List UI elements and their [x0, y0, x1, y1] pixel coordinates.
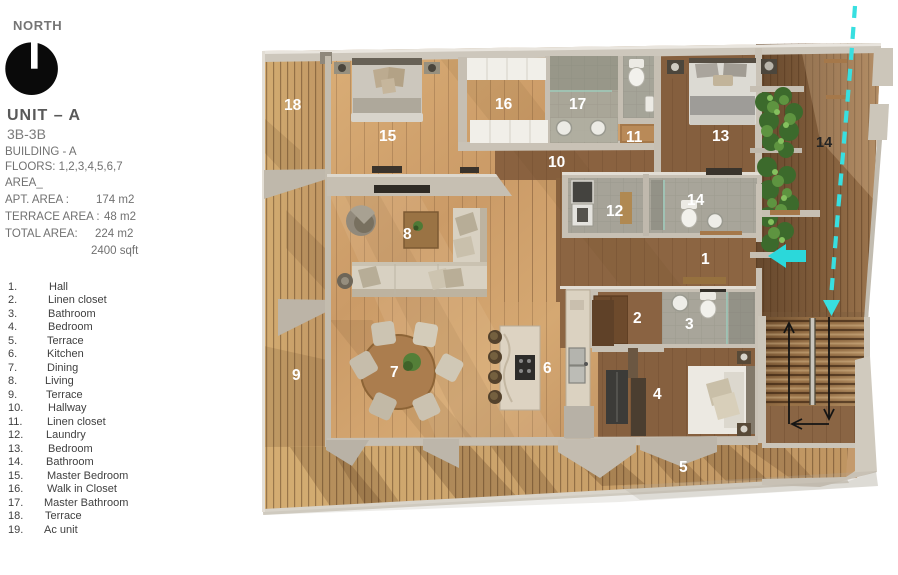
- svg-text:1: 1: [701, 251, 710, 268]
- svg-text:10: 10: [548, 154, 565, 171]
- svg-text:3: 3: [685, 316, 694, 333]
- svg-text:17: 17: [569, 96, 586, 113]
- svg-text:14: 14: [687, 192, 705, 209]
- svg-text:5: 5: [679, 459, 688, 476]
- svg-text:6: 6: [543, 360, 552, 377]
- svg-text:11: 11: [626, 129, 643, 146]
- svg-text:2: 2: [633, 310, 642, 327]
- svg-text:8: 8: [403, 226, 412, 243]
- svg-text:13: 13: [712, 128, 730, 145]
- svg-text:15: 15: [379, 128, 397, 145]
- svg-text:12: 12: [606, 203, 623, 220]
- svg-text:9: 9: [292, 367, 301, 384]
- svg-text:14: 14: [816, 135, 832, 151]
- svg-text:16: 16: [495, 96, 513, 113]
- svg-text:7: 7: [390, 364, 399, 381]
- svg-text:18: 18: [284, 97, 302, 114]
- svg-text:4: 4: [653, 386, 662, 403]
